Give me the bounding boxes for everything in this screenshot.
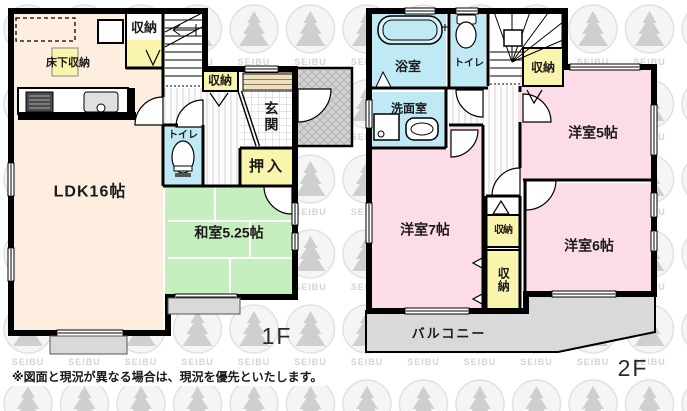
- shoe-cabinet: [243, 73, 293, 91]
- genkan-label: 玄関: [264, 101, 279, 133]
- entry-step-south: [50, 336, 127, 354]
- toilet-fixture-2f: [456, 15, 476, 48]
- wash-basin-icon: [406, 118, 438, 140]
- bathtub-icon: [378, 16, 448, 44]
- toilet-label-2f: トイレ: [454, 59, 484, 70]
- closet-low-2f-label: 収納: [497, 267, 510, 293]
- floor1-label: 1F: [262, 324, 293, 348]
- washer-icon: [374, 114, 399, 140]
- entry-step-washitsu: [168, 298, 240, 314]
- toilet-label-1f: トイレ: [168, 131, 198, 142]
- closet-top-1f-inner: [127, 40, 162, 67]
- west7-label: 洋室7帖: [400, 223, 450, 238]
- washroom-label: 洗面室: [391, 103, 427, 116]
- ldk-label: LDK16帖: [54, 185, 127, 202]
- floor-plan-page: SEIBUSEIBUSEIBUSEIBUSEIBUSEIBUSEIBUSEIBU…: [0, 0, 687, 411]
- west5-label: 洋室5帖: [568, 126, 618, 141]
- balcony-label: バルコニー: [412, 327, 487, 341]
- stove-icon: [26, 92, 53, 112]
- hallway-genkan-side: [205, 91, 240, 148]
- closet-mid-2f-label: 収納: [494, 226, 512, 237]
- refrigerator-icon: [98, 20, 123, 43]
- kitchen-counter-return: [127, 88, 135, 118]
- west6-label: 洋室6帖: [564, 239, 614, 254]
- closet-top-1f-label: 収納: [131, 21, 157, 35]
- oshiire-label: 押入: [249, 159, 285, 175]
- disclaimer-text: ※図面と現況が異なる場合は、現況を優先といたします。: [8, 369, 326, 386]
- closet-top-2f-label: 収納: [531, 62, 555, 75]
- sink-icon: [84, 92, 118, 112]
- floor-plan-drawing: [0, 0, 687, 411]
- washitsu-label: 和室5.25帖: [194, 226, 263, 241]
- closet-hall-1f-label: 収納: [208, 75, 232, 88]
- kitchen-counter-face: [18, 112, 136, 120]
- underfloor-label: 床下収納: [46, 58, 90, 70]
- floor2-label: 2F: [618, 356, 649, 380]
- bath-label: 浴室: [395, 60, 421, 74]
